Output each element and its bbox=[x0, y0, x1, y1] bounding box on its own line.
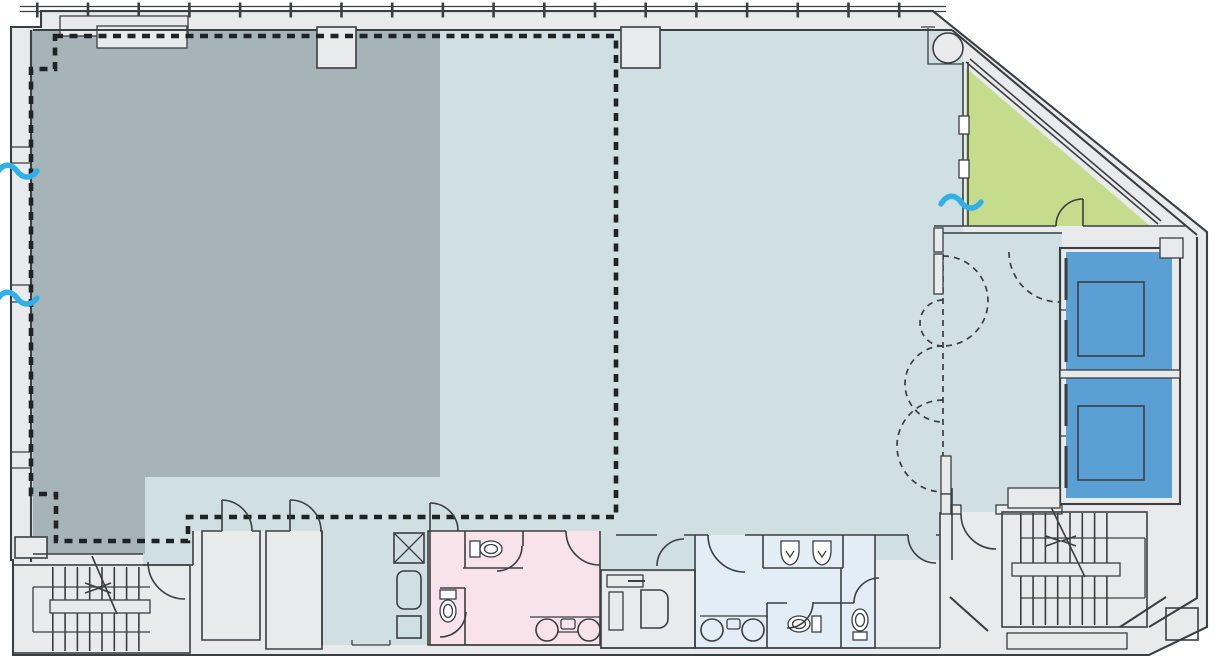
left-closet bbox=[15, 537, 47, 558]
service-room bbox=[266, 531, 322, 649]
stair-vestibule bbox=[1008, 488, 1060, 508]
window-mark bbox=[959, 116, 969, 134]
urinal bbox=[781, 541, 799, 565]
corner-block bbox=[1160, 238, 1183, 258]
toilet bbox=[788, 616, 821, 632]
stair-landing bbox=[50, 600, 150, 613]
window-mark bbox=[959, 160, 969, 178]
elevator-shaft bbox=[1066, 252, 1172, 370]
column bbox=[317, 27, 356, 68]
round-column bbox=[933, 33, 963, 63]
service-room bbox=[202, 531, 260, 640]
urinal bbox=[813, 541, 831, 565]
stair-landing bbox=[1012, 563, 1120, 576]
floor-plan-canvas bbox=[0, 0, 1224, 670]
column bbox=[621, 27, 660, 68]
elevator-bank bbox=[1060, 238, 1183, 504]
toilet bbox=[440, 590, 456, 622]
toilet bbox=[852, 609, 868, 640]
toilet bbox=[470, 541, 502, 557]
shaft-divider bbox=[1060, 370, 1180, 378]
floor-plan-drawing bbox=[0, 0, 1224, 670]
zone-dark bbox=[31, 30, 440, 554]
